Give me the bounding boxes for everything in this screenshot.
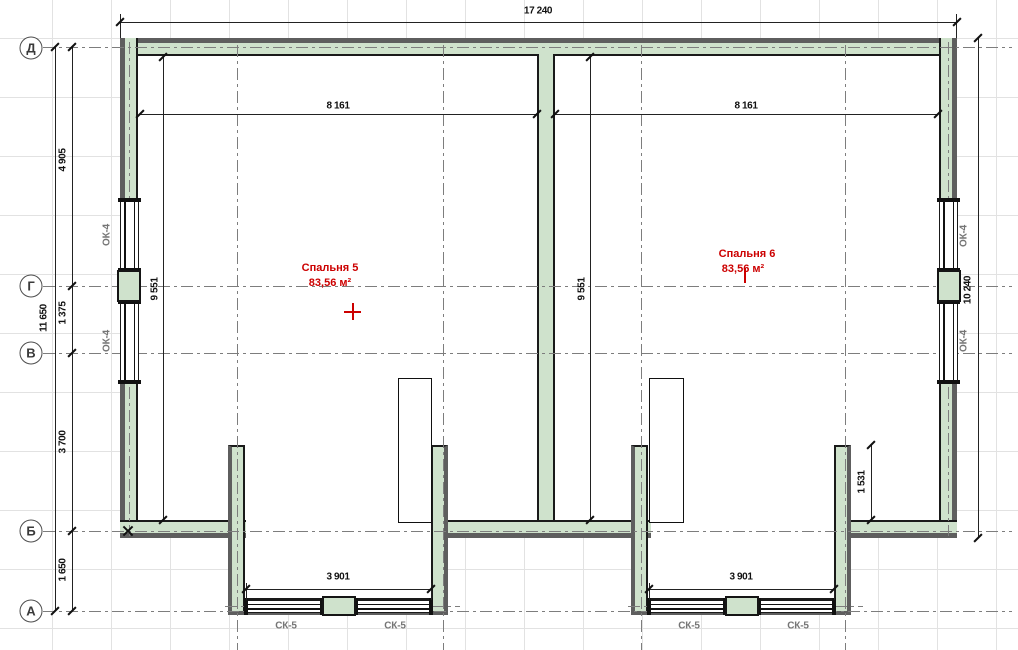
bay-pier-right xyxy=(725,596,759,616)
grid-bubble-label: А xyxy=(26,604,35,619)
window-jamb xyxy=(118,198,141,202)
dim-text-bay-wall: 1 531 xyxy=(857,470,868,493)
window-jamb xyxy=(244,598,248,615)
window-frame-line xyxy=(943,302,945,382)
dim-text-room-width-left: 8 161 xyxy=(326,101,349,112)
grid-bubble-label: Б xyxy=(26,524,35,539)
dim-text-span-v-b: 3 700 xyxy=(58,430,69,453)
window-frame-line xyxy=(953,200,955,270)
window-frame-line xyxy=(953,302,955,382)
bay-pier-left xyxy=(322,596,356,616)
gridline-col-4 xyxy=(845,45,846,650)
dim-line-room-height-left xyxy=(163,57,164,520)
dim-line-bay-width-left xyxy=(246,589,431,590)
dim-tick xyxy=(952,17,961,26)
shaft-rect-left xyxy=(398,378,432,523)
window-frame-line xyxy=(759,604,834,606)
dim-line-room-width-left xyxy=(140,114,537,115)
grid-bubble-g: Г xyxy=(20,275,43,298)
grid-bubble-a: А xyxy=(20,600,43,623)
dim-line-overall-height-right xyxy=(978,38,979,538)
window-frame-line xyxy=(246,604,322,606)
grid-bubble-label: Д xyxy=(26,41,35,56)
grid-bubble-d: Д xyxy=(20,37,43,60)
window-bay-left-2 xyxy=(356,600,431,613)
room-marker-cross-v xyxy=(352,303,354,320)
window-frame-line xyxy=(356,604,431,606)
window-jamb xyxy=(647,598,651,615)
window-frame-line xyxy=(649,604,725,606)
window-frame-line xyxy=(134,302,136,382)
window-tag-ok4-right-1: ОК-4 xyxy=(959,225,970,247)
gridline-row-a xyxy=(43,611,1012,612)
dim-text-span-d-g: 4 905 xyxy=(58,148,69,171)
window-frame-line xyxy=(246,608,322,610)
wall-pier-right xyxy=(937,270,961,302)
window-frame-line xyxy=(649,608,725,610)
gridline-col-2 xyxy=(443,45,444,650)
window-tag-ck5-1: СК-5 xyxy=(275,621,296,632)
dim-line-room-width-right xyxy=(555,114,938,115)
dim-text-overall-width: 17 240 xyxy=(524,6,552,17)
dim-ext-overall-right xyxy=(956,14,957,38)
window-tag-ok4-right-2: ОК-4 xyxy=(959,330,970,352)
room-name-right: Спальня 6 xyxy=(719,248,776,260)
window-frame-line xyxy=(134,200,136,270)
grid-bubble-label: В xyxy=(26,346,35,361)
dim-text-room-width-right: 8 161 xyxy=(734,101,757,112)
window-frame-line xyxy=(943,200,945,270)
dim-line-chain-left xyxy=(72,47,73,611)
gridline-row-v xyxy=(43,353,1012,354)
window-bay-right-2 xyxy=(759,600,834,613)
dim-text-overall-height-right: 10 240 xyxy=(963,276,974,304)
window-left-2 xyxy=(120,302,139,382)
dim-text-span-b-a: 1 650 xyxy=(58,558,69,581)
dim-text-bay-width-right: 3 901 xyxy=(729,572,752,583)
window-jamb xyxy=(832,598,836,615)
window-frame-line xyxy=(356,608,431,610)
window-bay-right-1 xyxy=(649,600,725,613)
room-marker-right xyxy=(744,268,746,283)
room-area-right: 83,56 м² xyxy=(722,263,764,275)
wall-middle xyxy=(537,54,555,522)
gridline-col-1 xyxy=(237,45,238,650)
gridline-col-3 xyxy=(641,45,642,650)
window-tag-ok4-left-2: ОК-4 xyxy=(102,330,113,352)
wall-bottom-middle xyxy=(431,520,651,538)
dim-line-bay-width-right xyxy=(649,589,834,590)
window-frame-line xyxy=(124,302,126,382)
dim-text-span-g-v: 1 375 xyxy=(58,301,69,324)
window-jamb xyxy=(937,380,960,384)
window-tag-ck5-2: СК-5 xyxy=(384,621,405,632)
window-tag-ck5-4: СК-5 xyxy=(787,621,808,632)
dim-ext-overall-left xyxy=(120,14,121,38)
dim-line-bay-wall xyxy=(871,445,872,520)
dim-line-overall-width xyxy=(120,22,957,23)
window-right-1 xyxy=(939,200,958,270)
gridline-row-g xyxy=(43,286,1012,287)
dim-tick xyxy=(973,533,982,542)
window-right-2 xyxy=(939,302,958,382)
wall-bottom-right xyxy=(834,520,957,538)
dim-text-bay-width-left: 3 901 xyxy=(326,572,349,583)
window-jamb xyxy=(937,198,960,202)
window-frame-line xyxy=(759,608,834,610)
floor-plan-canvas: 17 240 8 161 8 161 9 551 9 551 10 240 11… xyxy=(0,0,1018,650)
shaft-rect-right xyxy=(649,378,684,523)
window-left-1 xyxy=(120,200,139,270)
grid-bubble-v: В xyxy=(20,342,43,365)
window-tag-ck5-3: СК-5 xyxy=(678,621,699,632)
gridline-row-d xyxy=(43,47,1012,48)
window-bay-left-1 xyxy=(246,600,322,613)
window-tag-ok4-left-1: ОК-4 xyxy=(102,224,113,246)
dim-line-overall-height-left xyxy=(55,47,56,611)
dim-text-overall-height-left: 11 650 xyxy=(39,304,50,332)
dim-text-room-height-left: 9 551 xyxy=(150,277,161,300)
room-name-left: Спальня 5 xyxy=(302,262,359,274)
dim-text-room-height-right: 9 551 xyxy=(577,277,588,300)
window-frame-line xyxy=(124,200,126,270)
grid-bubble-b: Б xyxy=(20,520,43,543)
grid-bubble-label: Г xyxy=(27,279,34,294)
wall-bay-stub-2 xyxy=(431,445,448,615)
wall-pier-left xyxy=(117,270,141,302)
dim-line-room-height-right xyxy=(590,57,591,520)
room-area-left: 83,56 м² xyxy=(309,277,351,289)
wall-bay-stub-4 xyxy=(834,445,851,615)
window-jamb xyxy=(429,598,433,615)
window-jamb xyxy=(118,380,141,384)
gridline-row-b xyxy=(43,531,1012,532)
